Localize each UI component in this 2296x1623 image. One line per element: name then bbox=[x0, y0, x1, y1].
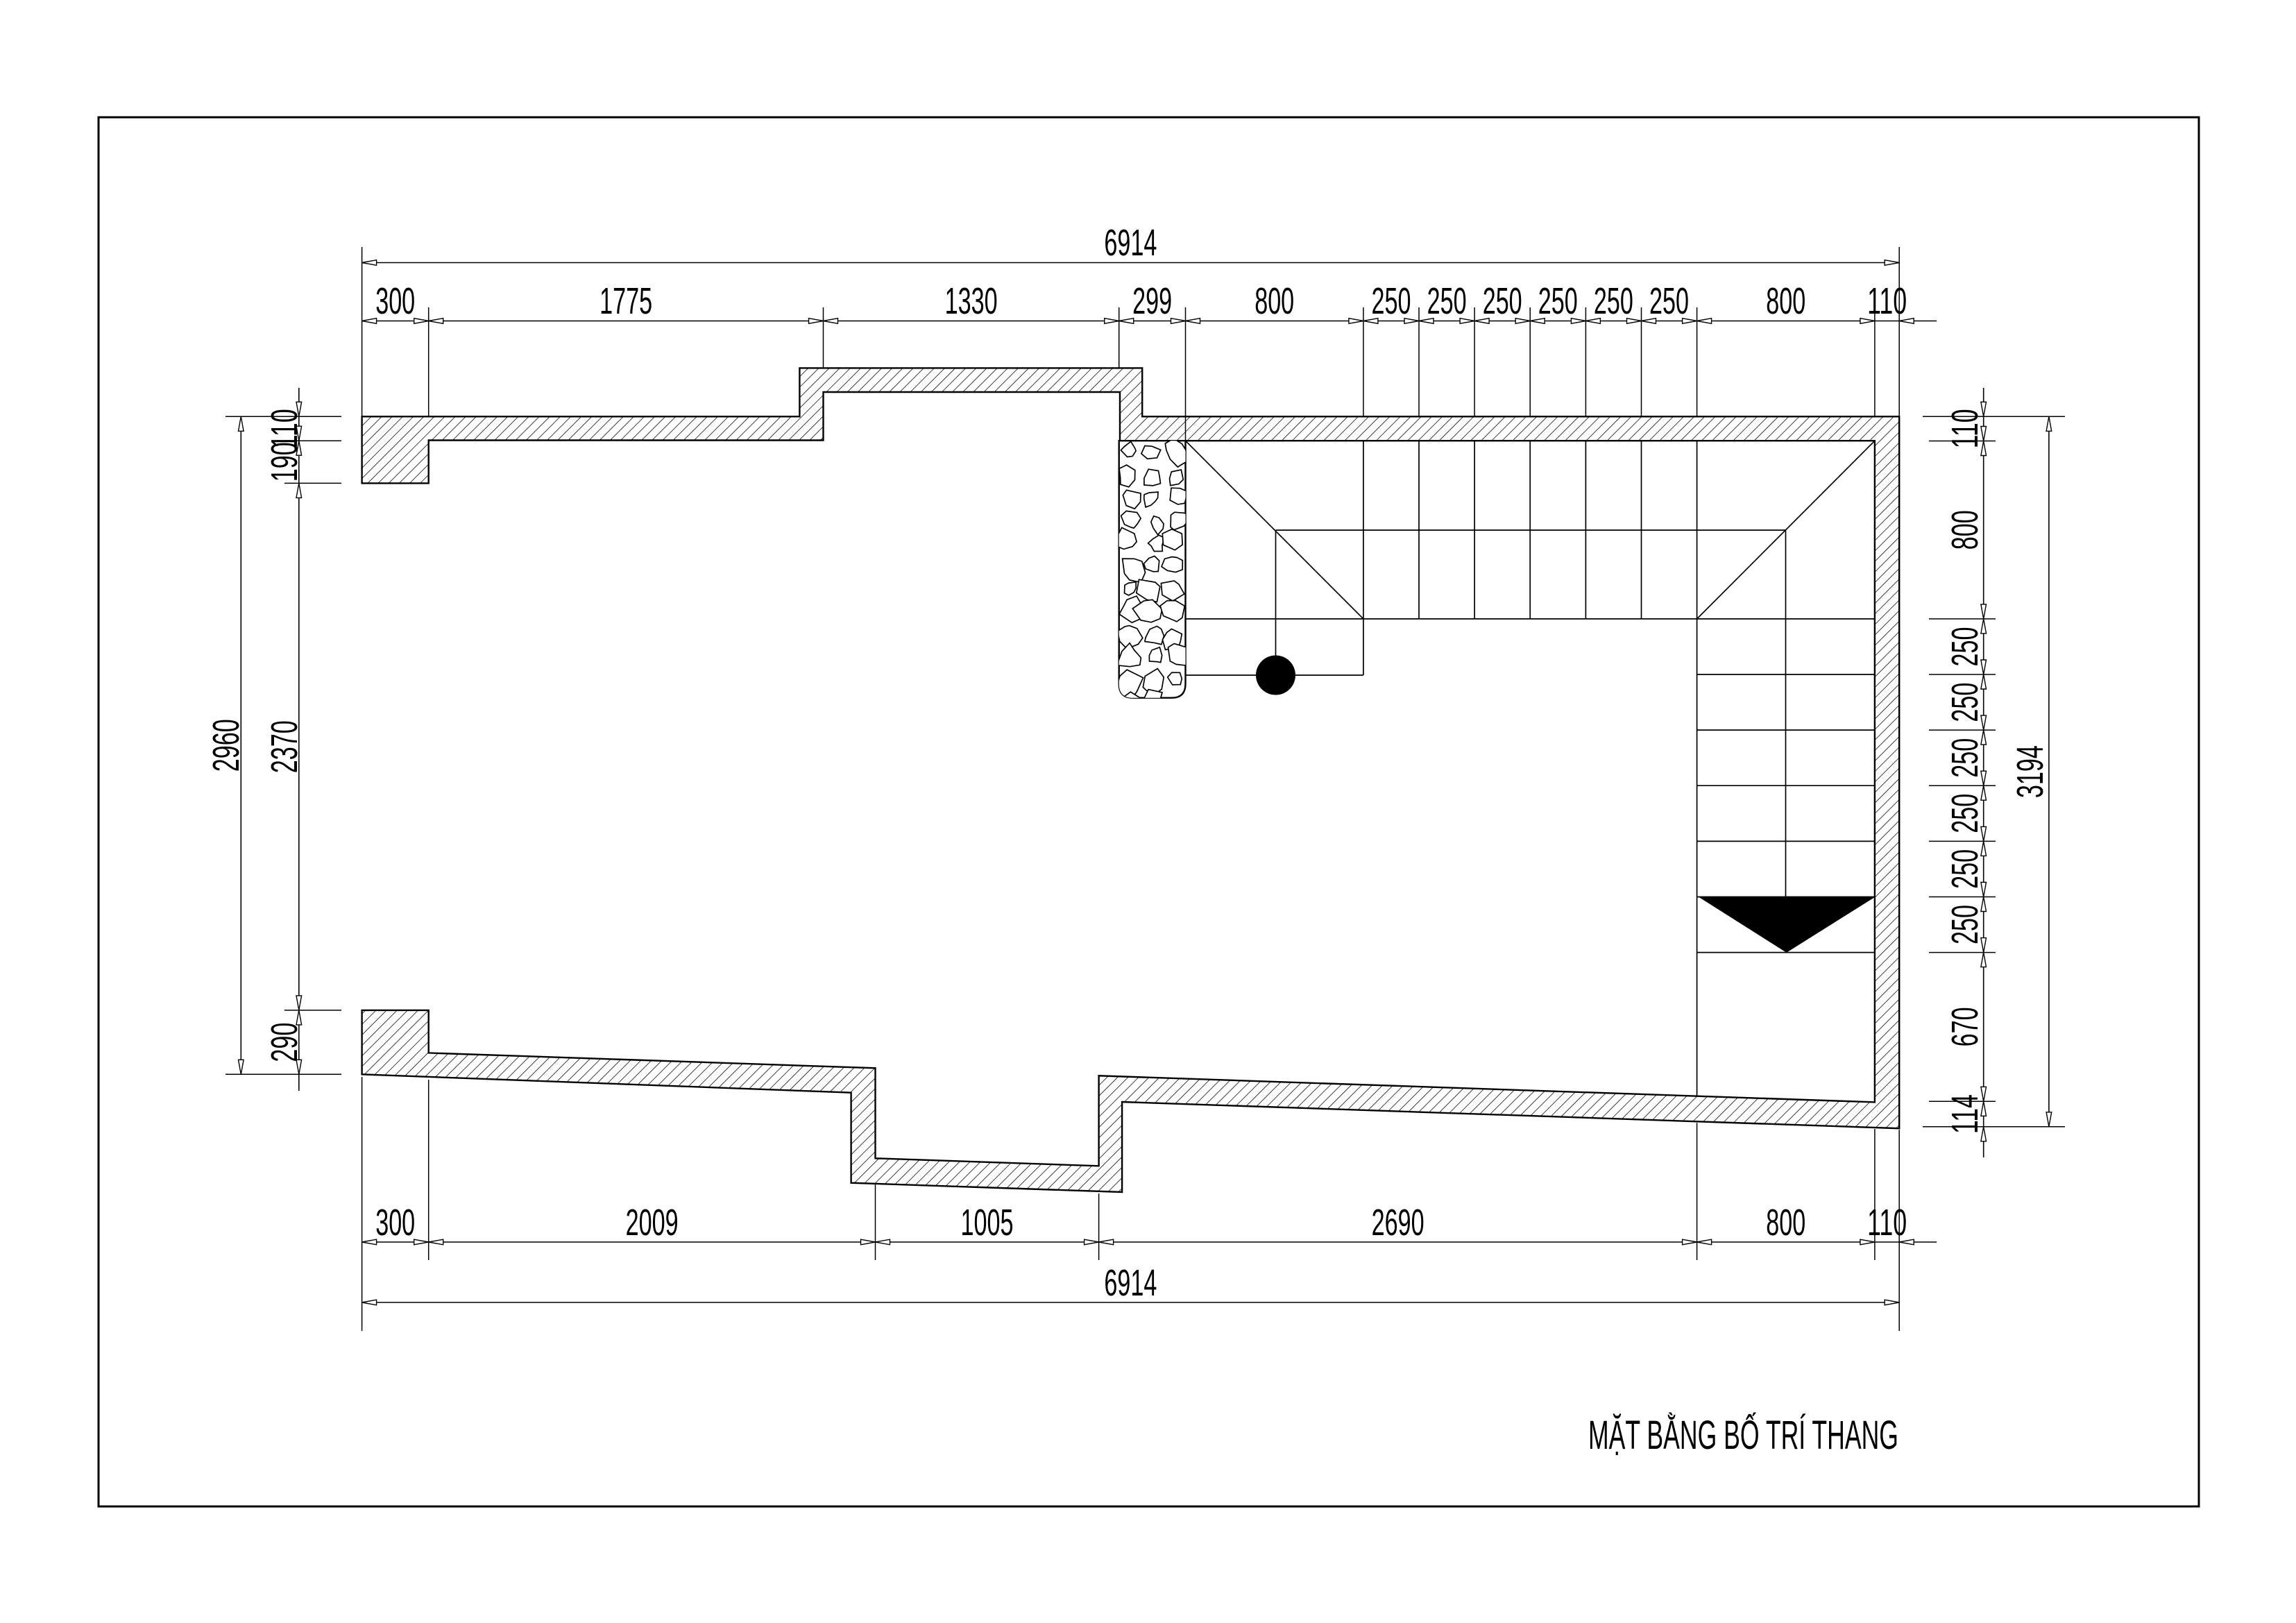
svg-text:250: 250 bbox=[1372, 280, 1411, 322]
svg-text:250: 250 bbox=[1944, 794, 1986, 833]
svg-text:114: 114 bbox=[1944, 1094, 1986, 1134]
svg-text:2690: 2690 bbox=[1372, 1202, 1425, 1243]
svg-text:250: 250 bbox=[1944, 738, 1986, 778]
svg-text:800: 800 bbox=[1944, 510, 1986, 550]
svg-text:250: 250 bbox=[1594, 280, 1633, 322]
svg-text:190: 190 bbox=[264, 442, 305, 482]
svg-text:800: 800 bbox=[1766, 1202, 1805, 1243]
svg-text:300: 300 bbox=[375, 1202, 415, 1243]
svg-text:1775: 1775 bbox=[599, 280, 652, 322]
svg-text:1330: 1330 bbox=[945, 280, 998, 322]
svg-text:2009: 2009 bbox=[626, 1202, 679, 1243]
svg-text:6914: 6914 bbox=[1104, 222, 1157, 264]
svg-text:110: 110 bbox=[1867, 280, 1907, 322]
svg-text:299: 299 bbox=[1132, 280, 1172, 322]
svg-text:6914: 6914 bbox=[1104, 1262, 1157, 1304]
svg-text:800: 800 bbox=[1255, 280, 1294, 322]
svg-text:800: 800 bbox=[1766, 280, 1805, 322]
svg-text:290: 290 bbox=[264, 1023, 305, 1062]
svg-text:250: 250 bbox=[1649, 280, 1689, 322]
svg-text:MẶT BẰNG BỐ TRÍ THANG: MẶT BẰNG BỐ TRÍ THANG bbox=[1588, 1413, 1898, 1458]
svg-text:110: 110 bbox=[1944, 409, 1986, 448]
svg-text:300: 300 bbox=[375, 280, 415, 322]
svg-text:250: 250 bbox=[1944, 849, 1986, 889]
svg-text:250: 250 bbox=[1538, 280, 1578, 322]
svg-text:1005: 1005 bbox=[961, 1202, 1014, 1243]
svg-text:250: 250 bbox=[1944, 905, 1986, 944]
svg-text:250: 250 bbox=[1944, 627, 1986, 667]
svg-text:250: 250 bbox=[1427, 280, 1467, 322]
svg-text:2370: 2370 bbox=[264, 720, 305, 773]
svg-text:250: 250 bbox=[1483, 280, 1522, 322]
svg-text:110: 110 bbox=[1867, 1202, 1907, 1243]
svg-text:250: 250 bbox=[1944, 683, 1986, 722]
svg-text:2960: 2960 bbox=[205, 719, 247, 772]
svg-text:670: 670 bbox=[1944, 1007, 1986, 1046]
svg-text:3194: 3194 bbox=[2009, 745, 2051, 798]
